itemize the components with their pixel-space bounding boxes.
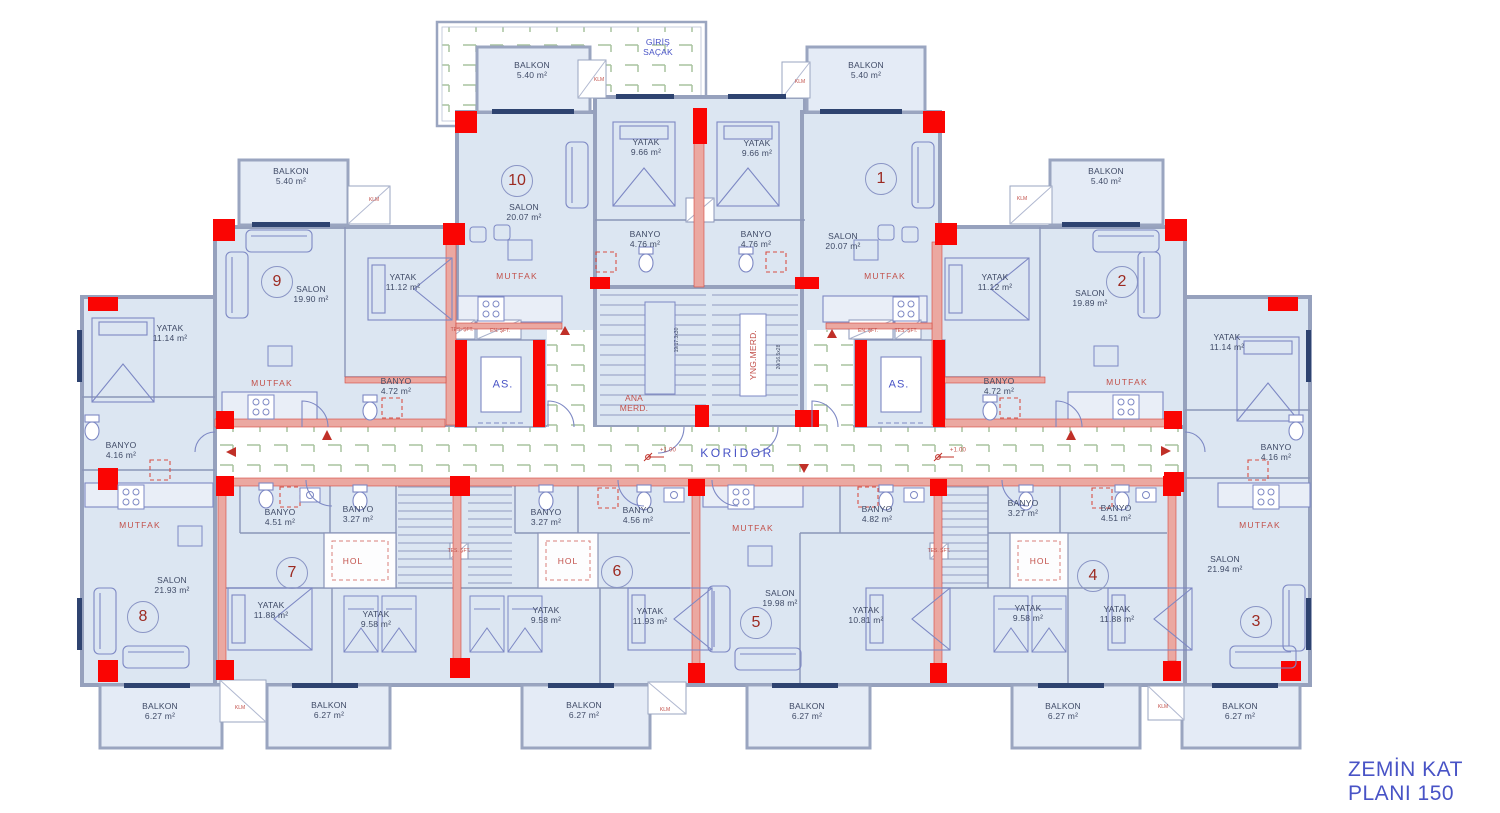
room-label-yatak1188-u4: YATAK11.88 m² — [1100, 604, 1135, 624]
room-label-mutfak-u2: MUTFAK — [1106, 377, 1148, 387]
room-label-banyo472-u9: BANYO4.72 m² — [381, 376, 412, 396]
room-label-mutfak-u8: MUTFAK — [119, 520, 161, 530]
drawing-title: ZEMİN KATPLANI 150 — [1348, 758, 1463, 806]
unit-number-2: 2 — [1106, 266, 1138, 298]
unit-number-9: 9 — [261, 266, 293, 298]
shaft-label-left-2: EN. ŞFT. — [490, 328, 510, 334]
unit-number-4: 4 — [1077, 560, 1109, 592]
ac-label-6: KLM — [660, 707, 670, 713]
room-label-yatak1114-right: YATAK11.14 m² — [1210, 332, 1245, 352]
room-label-balkon-u2: BALKON5.40 m² — [1088, 166, 1124, 186]
room-label-hol-u7: HOL — [343, 556, 363, 566]
room-label-yatak958-u6: YATAK9.58 m² — [531, 605, 561, 625]
unit-number-3: 3 — [1240, 606, 1272, 638]
room-label-salon-u5: SALON19.98 m² — [762, 588, 797, 608]
entrance-label: GİRİŞSAÇAK — [643, 37, 673, 57]
ac-label-5: KLM — [235, 705, 245, 711]
room-label-yatak1188-u7: YATAK11.88 m² — [254, 600, 289, 620]
ac-label-2: KLM — [795, 79, 805, 85]
room-label-balkon-u10: BALKON5.40 m² — [514, 60, 550, 80]
main-stair-dimension: 19/17.3x30 — [674, 328, 680, 353]
unit-number-6: 6 — [601, 556, 633, 588]
elevator-label-right: AS. — [889, 378, 910, 391]
room-label-banyo327-u4: BANYO3.27 m² — [1008, 498, 1039, 518]
room-label-mutfak-u1: MUTFAK — [864, 271, 906, 281]
level-mark-right: +1.00 — [950, 447, 966, 454]
room-label-banyo416-left: BANYO4.16 m² — [106, 440, 137, 460]
unit-number-10: 10 — [501, 165, 533, 197]
room-label-balkon-b6: BALKON6.27 m² — [1222, 701, 1258, 721]
elevator-label-left: AS. — [493, 378, 514, 391]
floor-plan-page: BALKON5.40 m² BALKON5.40 m² BALKON5.40 m… — [0, 0, 1500, 813]
room-label-balkon-b2: BALKON6.27 m² — [311, 700, 347, 720]
room-label-yatak1112-u9: YATAK11.12 m² — [386, 272, 421, 292]
fire-stair-dimension: 20/16.5x28 — [776, 345, 782, 370]
room-label-banyo476-right: BANYO4.76 m² — [741, 229, 772, 249]
room-label-yatak966-right: YATAK9.66 m² — [742, 138, 772, 158]
room-label-hol-u4: HOL — [1030, 556, 1050, 566]
room-label-banyo482-u5: BANYO4.82 m² — [862, 504, 893, 524]
room-label-salon-u3: SALON21.94 m² — [1207, 554, 1242, 574]
room-label-salon-u1: SALON20.07 m² — [825, 231, 860, 251]
room-label-mutfak-u10: MUTFAK — [496, 271, 538, 281]
room-label-salon-u9: SALON19.90 m² — [293, 284, 328, 304]
room-label-yatak1081-u5: YATAK10.81 m² — [848, 605, 883, 625]
room-label-yatak1112-u2: YATAK11.12 m² — [978, 272, 1013, 292]
room-label-banyo472-u2: BANYO4.72 m² — [984, 376, 1015, 396]
room-label-banyo451-u7: BANYO4.51 m² — [265, 507, 296, 527]
shaft-label-right-2: TES. ŞFT. — [895, 328, 918, 334]
unit-number-8: 8 — [127, 601, 159, 633]
room-label-salon-u10: SALON20.07 m² — [506, 202, 541, 222]
room-label-hol-u6: HOL — [558, 556, 578, 566]
shaft-label-left-1: TES. ŞFT. — [451, 327, 474, 333]
room-label-salon-u2: SALON19.89 m² — [1072, 288, 1107, 308]
room-label-banyo327-u7: BANYO3.27 m² — [343, 504, 374, 524]
room-label-yatak1114-left: YATAK11.14 m² — [153, 323, 188, 343]
ac-label-7: KLM — [1158, 704, 1168, 710]
room-label-balkon-b4: BALKON6.27 m² — [789, 701, 825, 721]
room-label-banyo327-u6: BANYO3.27 m² — [531, 507, 562, 527]
room-label-yatak958-u7: YATAK9.58 m² — [361, 609, 391, 629]
room-label-balkon-b5: BALKON6.27 m² — [1045, 701, 1081, 721]
room-label-banyo476-left: BANYO4.76 m² — [630, 229, 661, 249]
unit-number-5: 5 — [740, 607, 772, 639]
room-label-balkon-b3: BALKON6.27 m² — [566, 700, 602, 720]
room-label-yatak958-u4: YATAK9.58 m² — [1013, 603, 1043, 623]
ac-label-3: KLM — [369, 197, 379, 203]
room-label-banyo456-u6: BANYO4.56 m² — [623, 505, 654, 525]
ac-label-1: KLM — [594, 77, 604, 83]
ac-label-4: KLM — [1017, 196, 1027, 202]
room-label-mutfak-u9: MUTFAK — [251, 378, 293, 388]
unit-number-7: 7 — [276, 557, 308, 589]
level-mark-left: +1.00 — [660, 447, 676, 454]
room-label-mutfak-u3: MUTFAK — [1239, 520, 1281, 530]
shaft-label-right-1: EN. ŞFT. — [858, 328, 878, 334]
room-label-banyo416-right: BANYO4.16 m² — [1261, 442, 1292, 462]
room-label-balkon-b1: BALKON6.27 m² — [142, 701, 178, 721]
floor-plan-drawing — [0, 0, 1500, 813]
room-label-balkon-u9: BALKON5.40 m² — [273, 166, 309, 186]
fire-stair-label: YNG.MERD. — [748, 330, 758, 380]
room-label-balkon-u1: BALKON5.40 m² — [848, 60, 884, 80]
shaft-label-bottom-1: TES. ŞFT. — [448, 548, 471, 554]
room-label-banyo451-u4: BANYO4.51 m² — [1101, 503, 1132, 523]
corridor-label: KORİDOR — [700, 446, 774, 460]
unit-number-1: 1 — [865, 163, 897, 195]
room-label-yatak966-left: YATAK9.66 m² — [631, 137, 661, 157]
room-label-mutfak-u5: MUTFAK — [732, 523, 774, 533]
room-label-salon-u8: SALON21.93 m² — [154, 575, 189, 595]
room-label-yatak1193-u6: YATAK11.93 m² — [633, 606, 668, 626]
main-stair-label: ANAMERD. — [620, 393, 648, 413]
shaft-label-bottom-2: TES. ŞFT. — [928, 548, 951, 554]
